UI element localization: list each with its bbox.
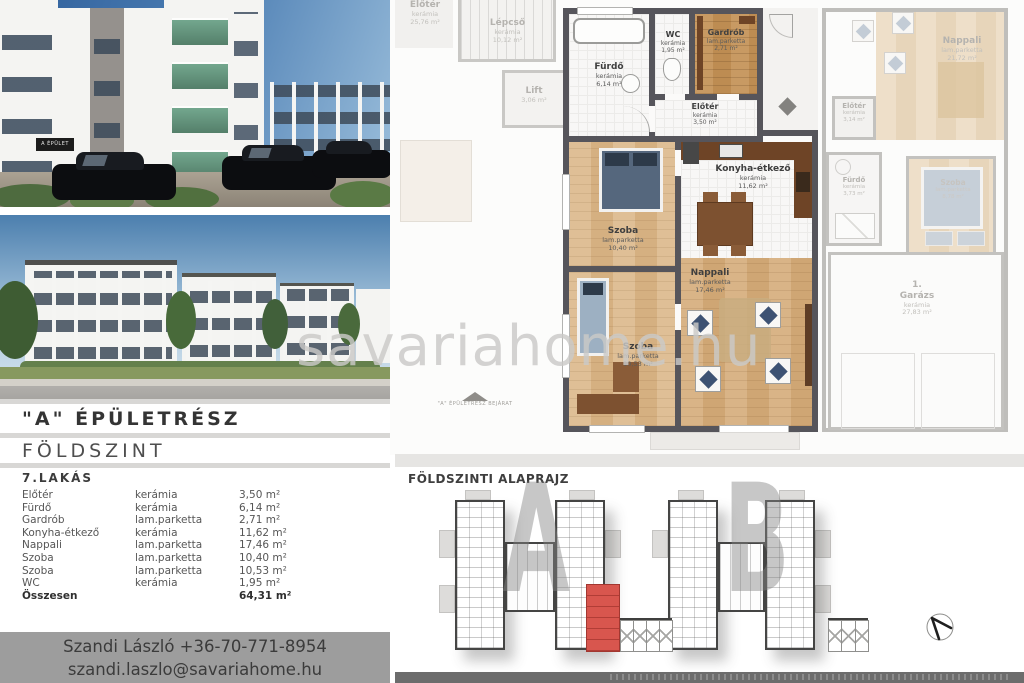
table-row: Szobalam.parketta10,53 m² <box>22 565 367 578</box>
balcony-protrusion <box>605 530 621 558</box>
double-bed <box>599 148 663 212</box>
carport-box <box>855 620 869 652</box>
car <box>52 164 176 200</box>
door-gap <box>649 106 655 132</box>
wall <box>675 142 681 426</box>
photo-building-render-top: A ÉPÜLET <box>0 0 390 207</box>
floor-plan: Előtér kerámia 25,76 m² Lépcső kerámia 1… <box>390 0 1024 455</box>
building-a-letter: A <box>503 465 538 615</box>
table-row: Szobalam.parketta10,40 m² <box>22 552 367 565</box>
balcony-protrusion <box>815 585 831 613</box>
pillow-faded <box>957 231 985 246</box>
window <box>562 174 570 230</box>
carport-box <box>620 620 634 652</box>
wall <box>689 14 695 100</box>
road <box>0 386 390 400</box>
window <box>577 7 633 15</box>
pillow-dark <box>583 283 603 295</box>
building-b-left-wing <box>668 500 718 650</box>
balcony-protrusion <box>815 530 831 558</box>
desk <box>613 362 639 392</box>
room-eloter-common <box>395 0 453 48</box>
door-arc <box>769 14 793 38</box>
bottom-disclaimer-bar <box>395 672 1024 683</box>
building-block-2-windows <box>186 281 272 365</box>
site-plan: A B <box>395 490 1024 668</box>
armchair-faded <box>892 12 914 34</box>
corridor-notch <box>757 8 818 136</box>
wall <box>569 266 675 272</box>
table-row: WCkerámia1,95 m² <box>22 577 367 590</box>
window <box>562 314 570 378</box>
balcony-protrusion <box>439 585 455 613</box>
garage-door-swing <box>841 353 915 429</box>
dining-table-faded <box>938 62 984 118</box>
cropped-text <box>610 674 1010 680</box>
armchair-faded <box>884 52 906 74</box>
contact-bar: Szandi László +36-70-771-8954 szandi.las… <box>0 632 390 683</box>
entrance-marker: "A" ÉPÜLETRÉSZ BEJÁRAT <box>410 392 540 407</box>
building-block-1-windows <box>30 271 172 367</box>
dining-table <box>697 202 753 246</box>
building-sign: A ÉPÜLET <box>36 138 74 151</box>
single-bed <box>577 278 609 356</box>
building-b-letter: B <box>724 465 759 615</box>
room-szoba-b <box>906 156 996 258</box>
balcony <box>172 18 228 45</box>
brochure-page: A ÉPÜLET "A" <box>0 0 1024 683</box>
room-garazs <box>828 252 1004 430</box>
balcony <box>172 106 228 133</box>
room-lepcso <box>458 0 556 62</box>
photo-complex-render-bottom <box>0 215 390 400</box>
car <box>312 150 390 178</box>
bed-faded <box>921 167 983 229</box>
fridge <box>683 142 699 164</box>
wardrobe <box>577 394 639 414</box>
armchair <box>755 302 781 328</box>
door-gap <box>675 304 681 330</box>
carport-row <box>620 618 672 652</box>
house-icon <box>462 392 488 401</box>
roof-notch <box>465 490 491 500</box>
highlighted-unit-7 <box>586 584 620 652</box>
balcony-protrusion <box>439 530 455 558</box>
carport-box <box>633 620 647 652</box>
carport-box <box>646 620 660 652</box>
building-a-left-wing <box>455 500 505 650</box>
window <box>589 425 645 433</box>
armchair <box>695 366 721 392</box>
armchair <box>765 358 791 384</box>
balcony-protrusion <box>652 530 668 558</box>
garage-door-swing <box>921 353 995 429</box>
roof-notch <box>678 490 704 500</box>
dining-chair <box>703 245 718 256</box>
bathtub <box>573 18 645 44</box>
pillow-dark <box>605 153 629 166</box>
wardrobe-shelf <box>739 16 755 24</box>
pillow-faded <box>925 231 953 246</box>
terrace <box>650 432 800 450</box>
sink-faded <box>835 159 851 175</box>
entrance-label: "A" ÉPÜLETRÉSZ BEJÁRAT <box>410 401 540 407</box>
floor-title: FÖLDSZINT <box>0 438 412 463</box>
contact-name-phone: Szandi László +36-70-771-8954 <box>0 635 390 658</box>
faded-terrace <box>400 140 472 222</box>
room-wc <box>655 14 689 94</box>
tree <box>166 291 196 349</box>
neighbor-unit-faded: Nappali lam.parketta 21,72 m² Előtér ker… <box>822 8 1008 432</box>
stove <box>796 172 810 192</box>
building-block-4 <box>356 289 390 363</box>
kitchen-sink <box>719 144 743 158</box>
armchair-faded <box>852 20 874 42</box>
room-furdo-b <box>826 152 882 246</box>
apartment-unit-7: Fürdő kerámia 6,14 m² WC kerámia 1,95 m²… <box>563 8 818 432</box>
armchair <box>687 310 713 336</box>
kitchen-counter <box>681 142 812 160</box>
room-gardrob <box>695 14 757 94</box>
sink <box>621 74 640 93</box>
room-lift <box>502 70 566 128</box>
entry-door-symbol <box>778 97 796 115</box>
pillow-dark <box>633 153 657 166</box>
table-row: Fürdőkerámia6,14 m² <box>22 502 367 515</box>
table-row: Előtérkerámia3,50 m² <box>22 489 367 502</box>
room-table: Előtérkerámia3,50 m² Fürdőkerámia6,14 m²… <box>22 489 367 602</box>
room-eloter <box>655 100 757 136</box>
balcony <box>172 62 228 89</box>
roof-notch <box>569 490 595 500</box>
carport-box <box>659 620 673 652</box>
tree <box>262 299 288 349</box>
room-eloter-b <box>832 96 876 140</box>
carport-row <box>828 618 868 652</box>
carport-box <box>828 620 842 652</box>
tv-cabinet <box>805 304 812 386</box>
toilet <box>663 58 681 81</box>
carport-box <box>841 620 855 652</box>
door-gap <box>717 94 739 100</box>
table-total-row: Összesen64,31 m² <box>22 590 367 603</box>
contact-email: szandi.laszlo@savariahome.hu <box>0 658 390 681</box>
wardrobe-shelf <box>697 16 703 90</box>
tree <box>338 303 360 345</box>
dining-chair <box>731 245 746 256</box>
table-row: Gardróblam.parketta2,71 m² <box>22 514 367 527</box>
siteplan-divider <box>395 454 1024 467</box>
shower-faded <box>835 213 875 239</box>
section-title: "A" ÉPÜLETRÉSZ <box>0 404 412 433</box>
divider <box>0 463 390 468</box>
unit-title: 7.LAKÁS <box>22 471 93 485</box>
bush <box>330 181 390 207</box>
door-gap <box>665 94 685 100</box>
table-row: Nappalilam.parketta17,46 m² <box>22 539 367 552</box>
table-row: Konyha-étkezőkerámia11,62 m² <box>22 527 367 540</box>
north-arrow-icon <box>923 611 957 645</box>
